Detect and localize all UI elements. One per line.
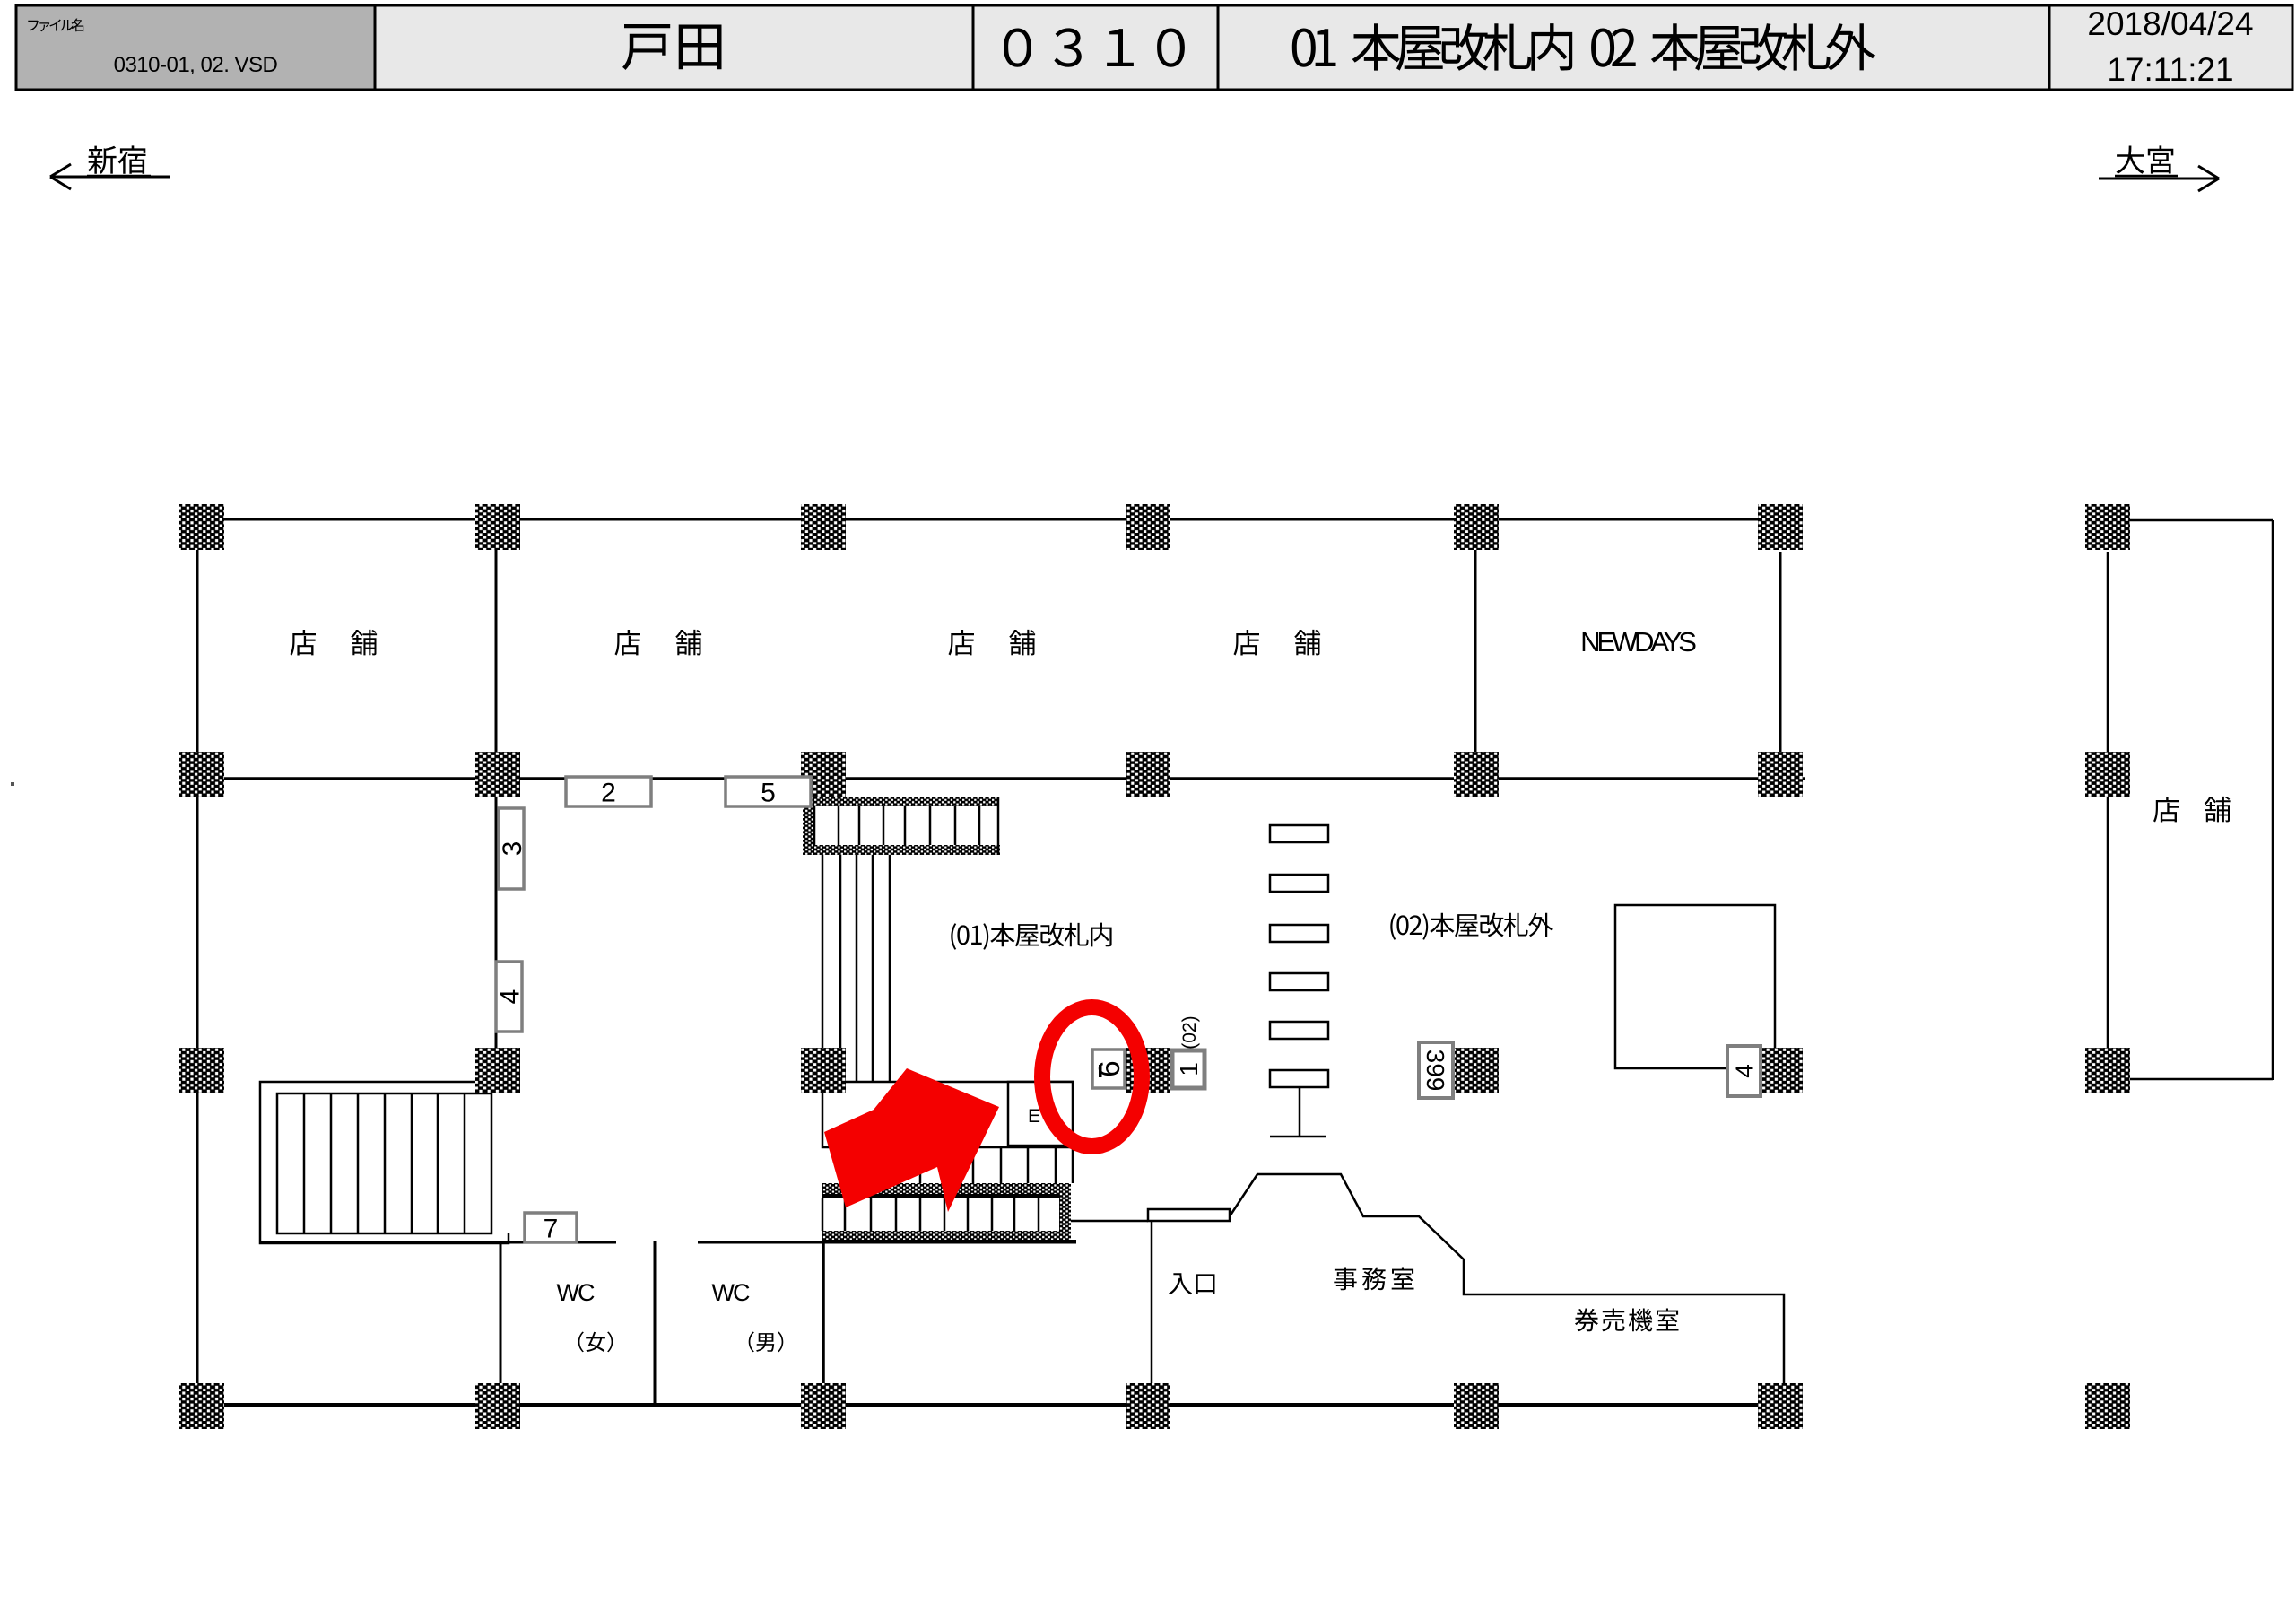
svg-text:5: 5 bbox=[761, 778, 776, 807]
svg-text:WC: WC bbox=[557, 1279, 595, 1306]
svg-text:NEWDAYS: NEWDAYS bbox=[1580, 626, 1696, 658]
svg-text:3: 3 bbox=[498, 841, 527, 857]
svg-text:6: 6 bbox=[1092, 1060, 1126, 1076]
svg-text:E: E bbox=[1028, 1106, 1040, 1127]
svg-text:4: 4 bbox=[1731, 1064, 1759, 1078]
svg-text:1: 1 bbox=[1175, 1062, 1203, 1076]
svg-text:0310-01, 02. VSD: 0310-01, 02. VSD bbox=[114, 53, 278, 77]
svg-text:2018/04/24: 2018/04/24 bbox=[2087, 5, 2253, 42]
svg-text:2: 2 bbox=[601, 778, 616, 807]
svg-text:WC: WC bbox=[712, 1279, 750, 1306]
svg-text:4: 4 bbox=[495, 989, 525, 1005]
svg-text:7: 7 bbox=[544, 1214, 559, 1243]
svg-text:17:11:21: 17:11:21 bbox=[2107, 51, 2233, 88]
svg-text:399: 399 bbox=[1422, 1050, 1449, 1092]
svg-text:(02): (02) bbox=[1179, 1015, 1200, 1049]
